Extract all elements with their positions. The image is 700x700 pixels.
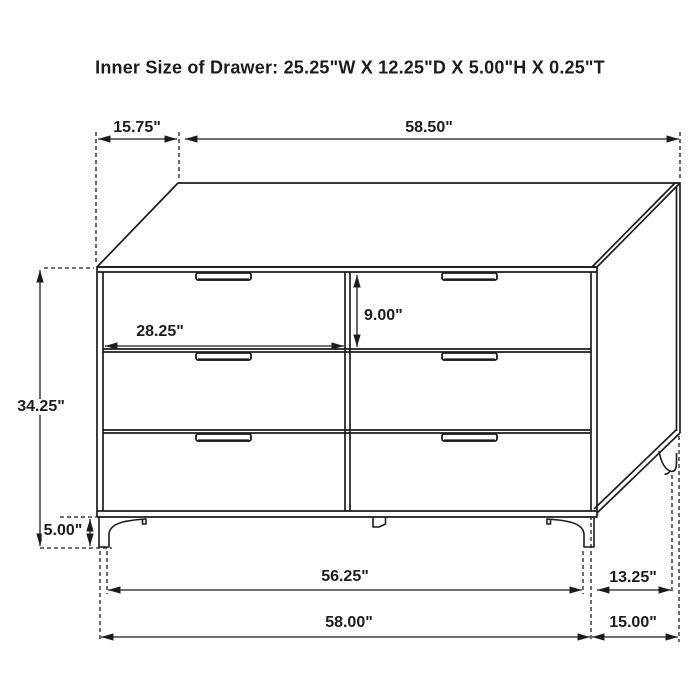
label-top-depth: 15.75" (111, 120, 163, 136)
front-face (97, 267, 597, 517)
front-left-leg (99, 517, 146, 547)
label-side-depth: 15.00" (607, 615, 659, 631)
label-top-width: 58.50" (403, 120, 455, 136)
dimension-diagram: Inner Size of Drawer: 25.25"W X 12.25"D … (0, 0, 700, 700)
top-surface-right-edge-inner (592, 183, 675, 267)
label-side-leg-span: 13.25" (607, 570, 659, 586)
drawer-handle (442, 434, 497, 441)
side-panel-bottom-edge-inner (594, 430, 676, 509)
rear-right-leg (659, 451, 677, 474)
label-overall-height: 34.25" (15, 399, 67, 415)
drawer-handle (196, 273, 251, 280)
label-leg-height: 5.00" (42, 523, 85, 539)
center-foot (373, 517, 386, 527)
label-drawer-width: 28.25" (134, 324, 186, 340)
diagram-title: Inner Size of Drawer: 25.25"W X 12.25"D … (95, 58, 605, 79)
drawer-handle (442, 273, 497, 280)
label-front-leg-span: 56.25" (319, 569, 371, 585)
drawer-handle (442, 353, 497, 360)
top-surface (97, 183, 680, 267)
drawer-handle (196, 353, 251, 360)
label-front-width: 58.00" (323, 615, 375, 631)
dresser-line-drawing (0, 0, 700, 700)
label-drawer-height: 9.00" (362, 308, 405, 324)
drawer-handle (196, 434, 251, 441)
front-right-leg (547, 517, 594, 547)
